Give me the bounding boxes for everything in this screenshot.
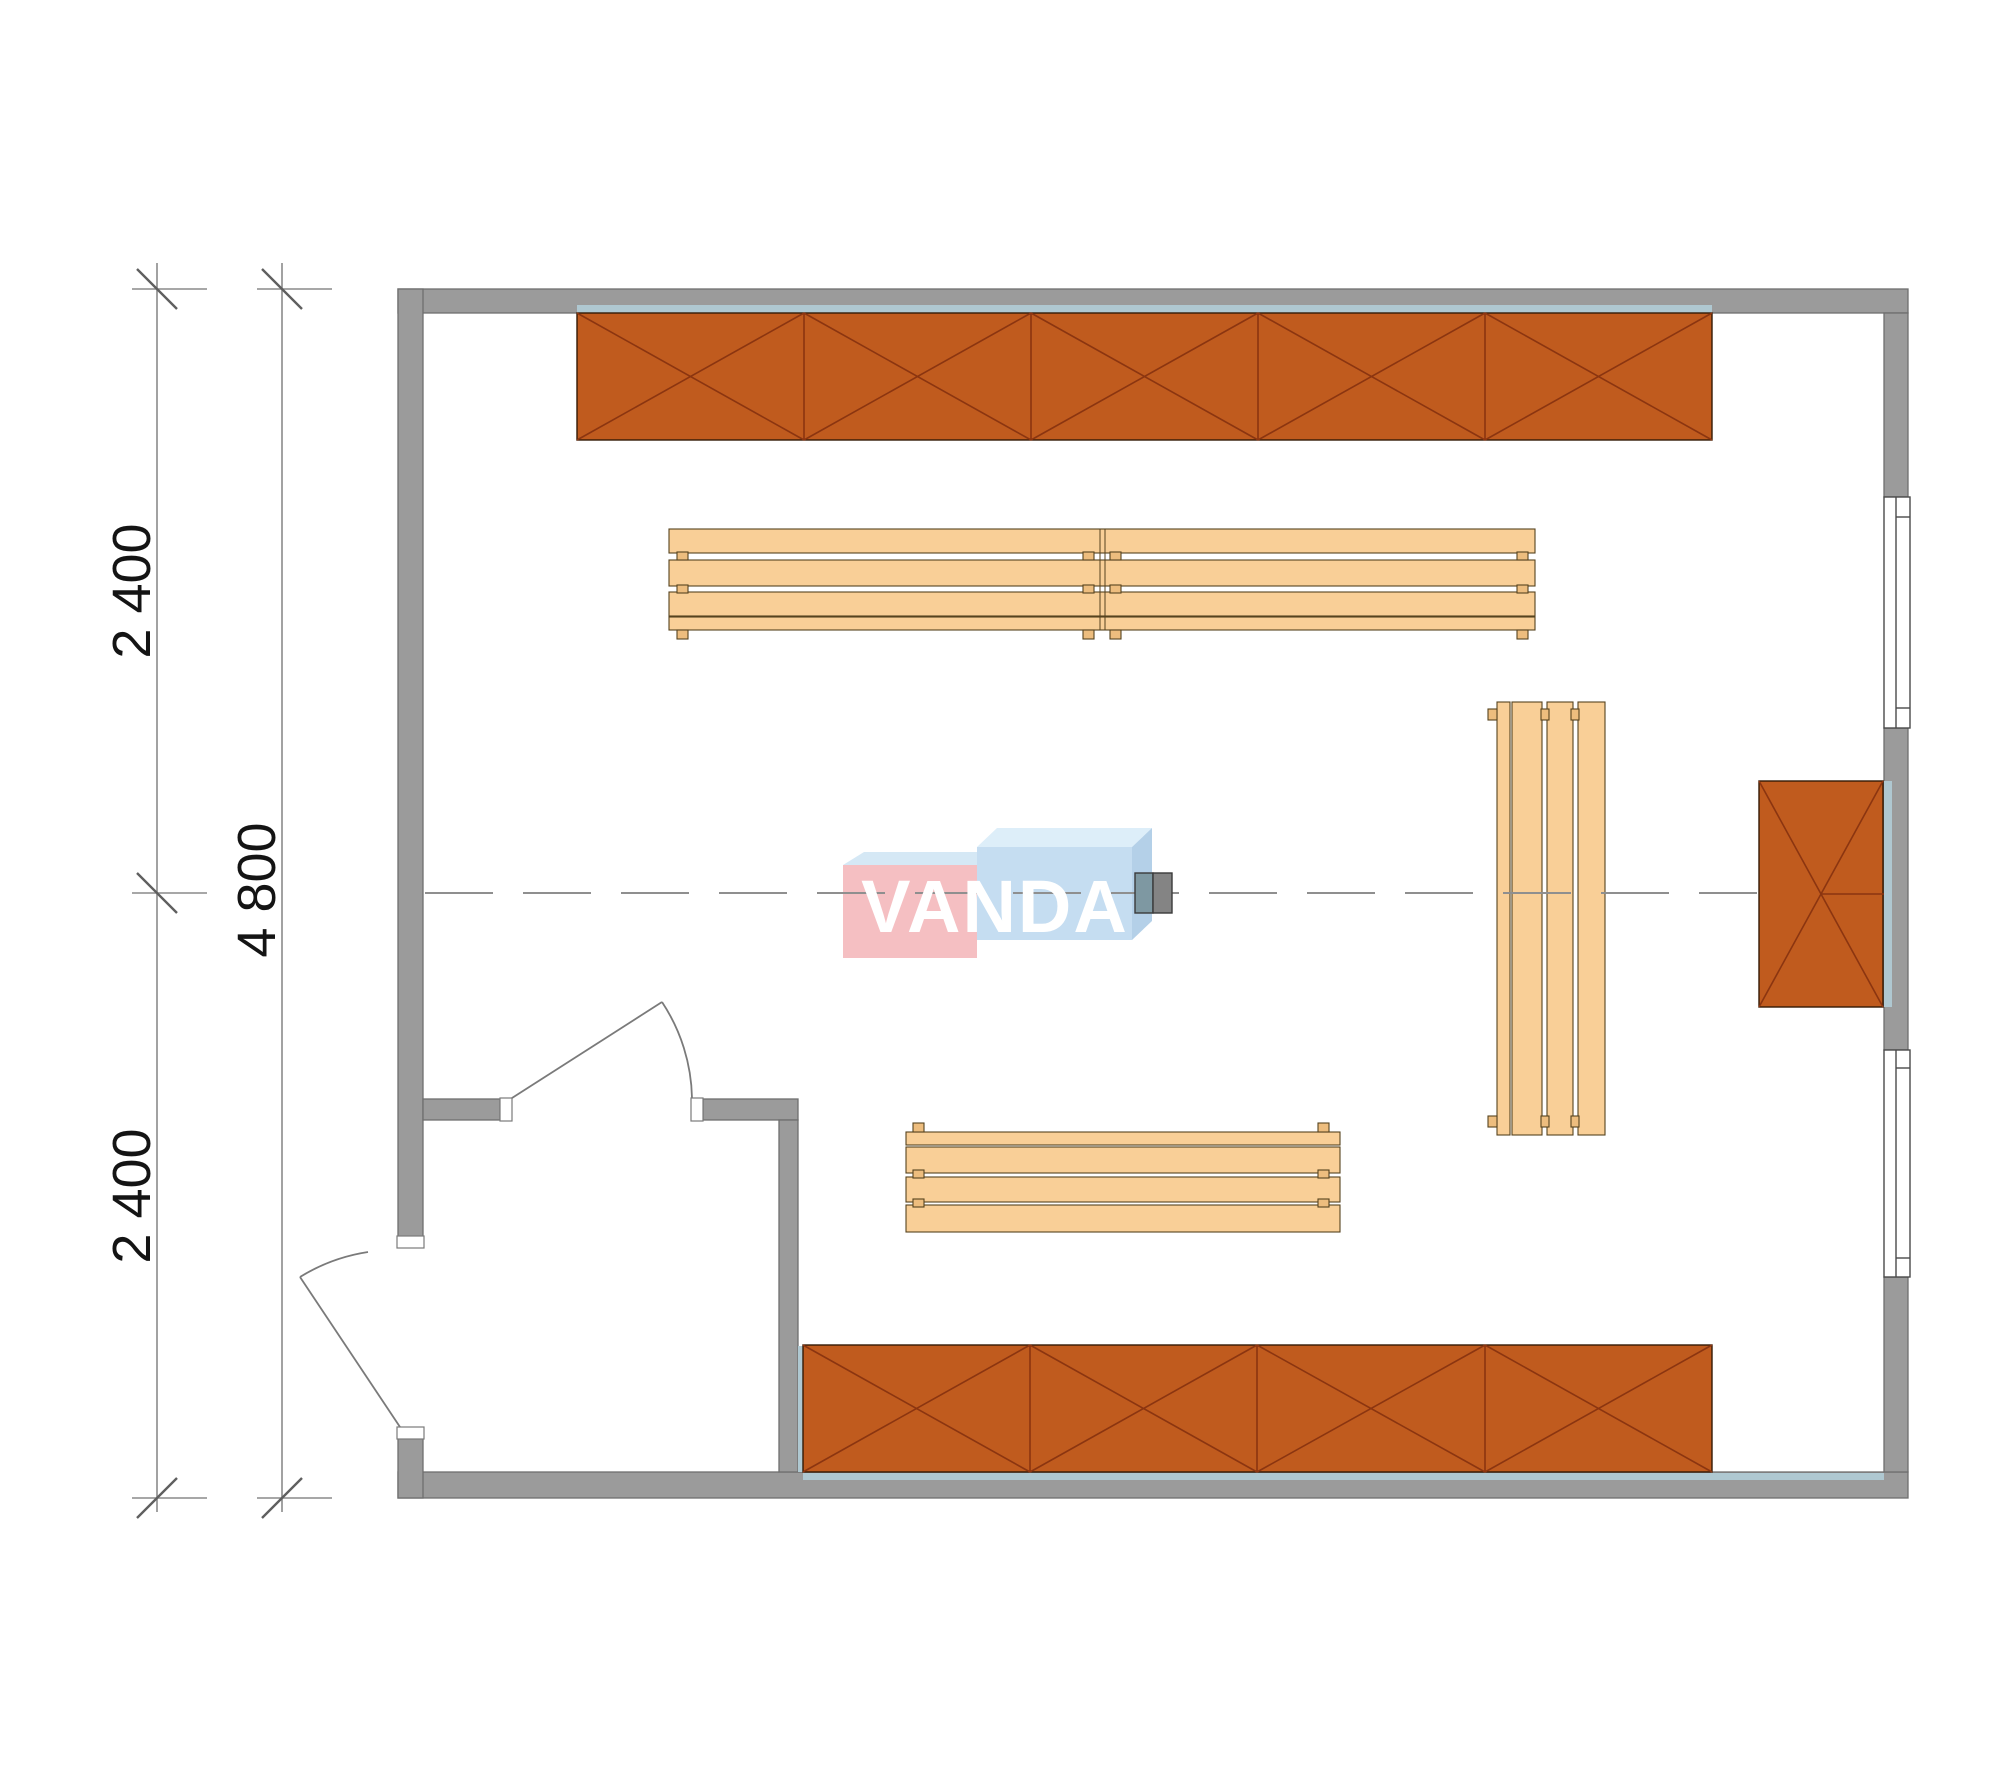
bench-peg xyxy=(1541,1116,1549,1127)
bench-peg xyxy=(1110,552,1121,560)
bench-peg xyxy=(677,585,688,593)
bench-peg xyxy=(1083,630,1094,639)
wall-left-upper xyxy=(398,289,423,1237)
equipment-square xyxy=(1135,873,1172,913)
logo-blue-top-face xyxy=(977,828,1152,847)
bench-peg xyxy=(1083,552,1094,560)
wall-right-upper xyxy=(1884,313,1908,497)
equipment-right-half xyxy=(1153,873,1172,913)
dimension-label-total: 4 800 xyxy=(227,822,287,957)
bench-peg xyxy=(1110,585,1121,593)
bench-peg xyxy=(1318,1170,1329,1178)
window-frame xyxy=(1884,497,1910,728)
trim-strip-top xyxy=(577,305,1712,313)
bench-slat xyxy=(669,592,1535,616)
watermark-text: VANDA xyxy=(861,865,1129,948)
window-lower xyxy=(1884,1050,1910,1277)
wall-vestibule-left xyxy=(423,1099,500,1120)
window-frame xyxy=(1884,1050,1910,1277)
bench-peg xyxy=(1488,1116,1497,1127)
bench-slat xyxy=(669,560,1535,586)
bench-slat xyxy=(1512,702,1542,1135)
cabinet-row-bottom xyxy=(803,1345,1712,1472)
wall-left-lower xyxy=(398,1438,423,1498)
bench-peg xyxy=(913,1123,924,1132)
bench-top-double xyxy=(669,529,1535,639)
door-jamb xyxy=(691,1098,703,1121)
bench-peg xyxy=(1517,585,1528,593)
window-upper xyxy=(1884,497,1910,728)
bench-peg xyxy=(913,1199,924,1207)
door-exterior xyxy=(300,1252,400,1427)
bench-peg xyxy=(1318,1199,1329,1207)
bench-slat xyxy=(1578,702,1605,1135)
door-swing-arc xyxy=(300,1252,368,1277)
door-leaf xyxy=(300,1277,400,1427)
bench-bottom xyxy=(906,1123,1340,1232)
door-leaf xyxy=(512,1002,662,1098)
bench-peg xyxy=(677,630,688,639)
bench-slat xyxy=(906,1177,1340,1202)
bench-slat xyxy=(906,1132,1340,1145)
bench-peg xyxy=(1110,630,1121,639)
wall-vestibule-right xyxy=(703,1099,798,1120)
dimension-label-top: 2 400 xyxy=(102,523,162,658)
door-jamb xyxy=(397,1236,424,1248)
bench-peg xyxy=(677,552,688,560)
bench-slat xyxy=(669,617,1535,630)
bench-slat xyxy=(906,1205,1340,1232)
cabinet-row-top xyxy=(577,313,1712,440)
bench-peg xyxy=(1517,552,1528,560)
trim-strip-right xyxy=(1884,781,1892,1007)
door-interior xyxy=(512,1002,692,1098)
doors xyxy=(300,1002,703,1439)
bench-slat xyxy=(1497,702,1510,1135)
wall-vestibule-vertical xyxy=(779,1120,798,1472)
bench-peg xyxy=(1488,709,1497,720)
dimension-annotations: 2 400 2 400 4 800 xyxy=(102,263,332,1518)
wall-right-lower xyxy=(1884,1277,1908,1472)
bench-peg xyxy=(1318,1123,1329,1132)
door-jamb xyxy=(500,1098,512,1121)
floor-plan-canvas: 2 400 2 400 4 800 xyxy=(0,0,2000,1786)
cabinet-right xyxy=(1759,781,1884,1007)
door-jamb xyxy=(397,1427,424,1439)
bench-peg xyxy=(1083,585,1094,593)
equipment-left-half xyxy=(1135,873,1153,913)
logo-pink-top-face xyxy=(843,852,998,865)
dimension-label-bottom: 2 400 xyxy=(102,1128,162,1263)
bench-peg xyxy=(1571,1116,1579,1127)
door-swing-arc xyxy=(662,1002,692,1098)
bench-peg xyxy=(1571,709,1579,720)
bench-slat xyxy=(669,529,1535,553)
bench-slat xyxy=(906,1147,1340,1173)
bench-right-vertical xyxy=(1488,702,1605,1135)
bench-peg xyxy=(913,1170,924,1178)
bench-peg xyxy=(1517,630,1528,639)
floor-plan-page: 2 400 2 400 4 800 xyxy=(0,0,2000,1786)
bench-peg xyxy=(1541,709,1549,720)
trim-strip-bottom xyxy=(803,1473,1884,1480)
trim-strip-vestibule xyxy=(798,1346,803,1472)
bench-slat xyxy=(1547,702,1573,1135)
